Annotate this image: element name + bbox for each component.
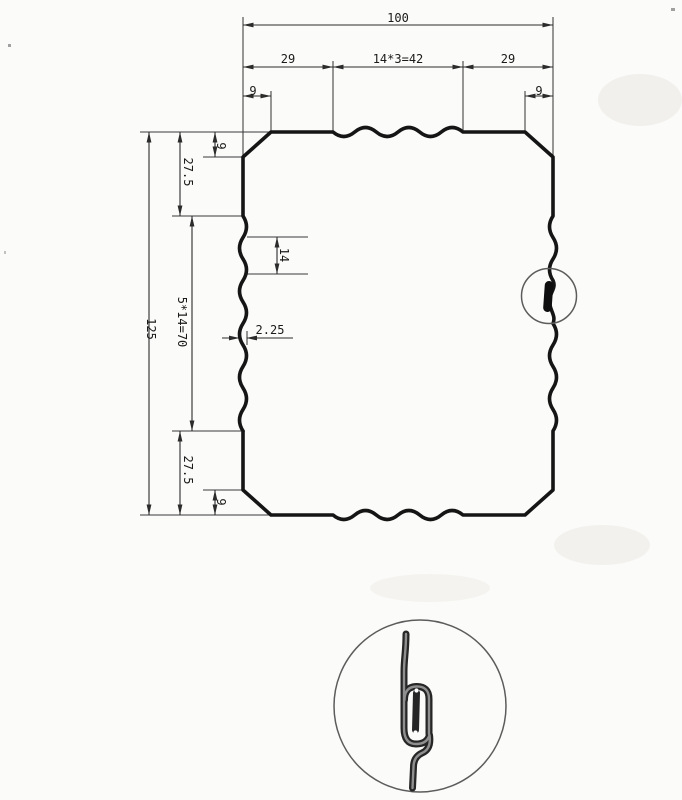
dim-side-chamfer-top: 9 <box>214 142 228 149</box>
dim-top-seg-left: 29 <box>281 52 295 66</box>
dim-wave-pitch: 14 <box>277 248 291 262</box>
drawing-page: 100 29 14*3=42 29 9 9 125 27.5 5*14=70 2… <box>0 0 682 800</box>
profile-outline <box>240 128 557 520</box>
seam-fold-gap-bottom <box>413 730 417 734</box>
noise-speck <box>8 44 11 47</box>
noise-speck <box>671 8 675 11</box>
noise-speck <box>4 251 6 254</box>
dim-top-seg-mid: 14*3=42 <box>373 52 424 66</box>
seam-sheet-stub <box>416 693 417 730</box>
smudge <box>598 74 682 126</box>
extension-lines <box>140 17 553 515</box>
dimension-lines <box>149 25 553 515</box>
seam-fold-gap-top <box>414 688 418 692</box>
dim-top-seg-right: 29 <box>501 52 515 66</box>
dim-chamfer-left: 9 <box>249 84 256 98</box>
smudge <box>370 574 490 602</box>
dim-chamfer-right: 9 <box>535 84 542 98</box>
seam-detail-enlarged <box>404 634 430 788</box>
dim-side-chamfer-bottom: 9 <box>214 498 228 505</box>
dim-side-wave: 5*14=70 <box>175 297 189 348</box>
technical-drawing: 100 29 14*3=42 29 9 9 125 27.5 5*14=70 2… <box>0 0 682 800</box>
detail-view-circle <box>334 620 506 792</box>
dim-overall-height: 125 <box>144 318 158 340</box>
dim-side-upper: 27.5 <box>181 158 195 187</box>
dim-overall-width: 100 <box>387 11 409 25</box>
dim-wave-depth: 2.25 <box>256 323 285 337</box>
scan-artifacts <box>4 8 682 602</box>
dim-side-lower: 27.5 <box>181 456 195 485</box>
smudge <box>554 525 650 565</box>
